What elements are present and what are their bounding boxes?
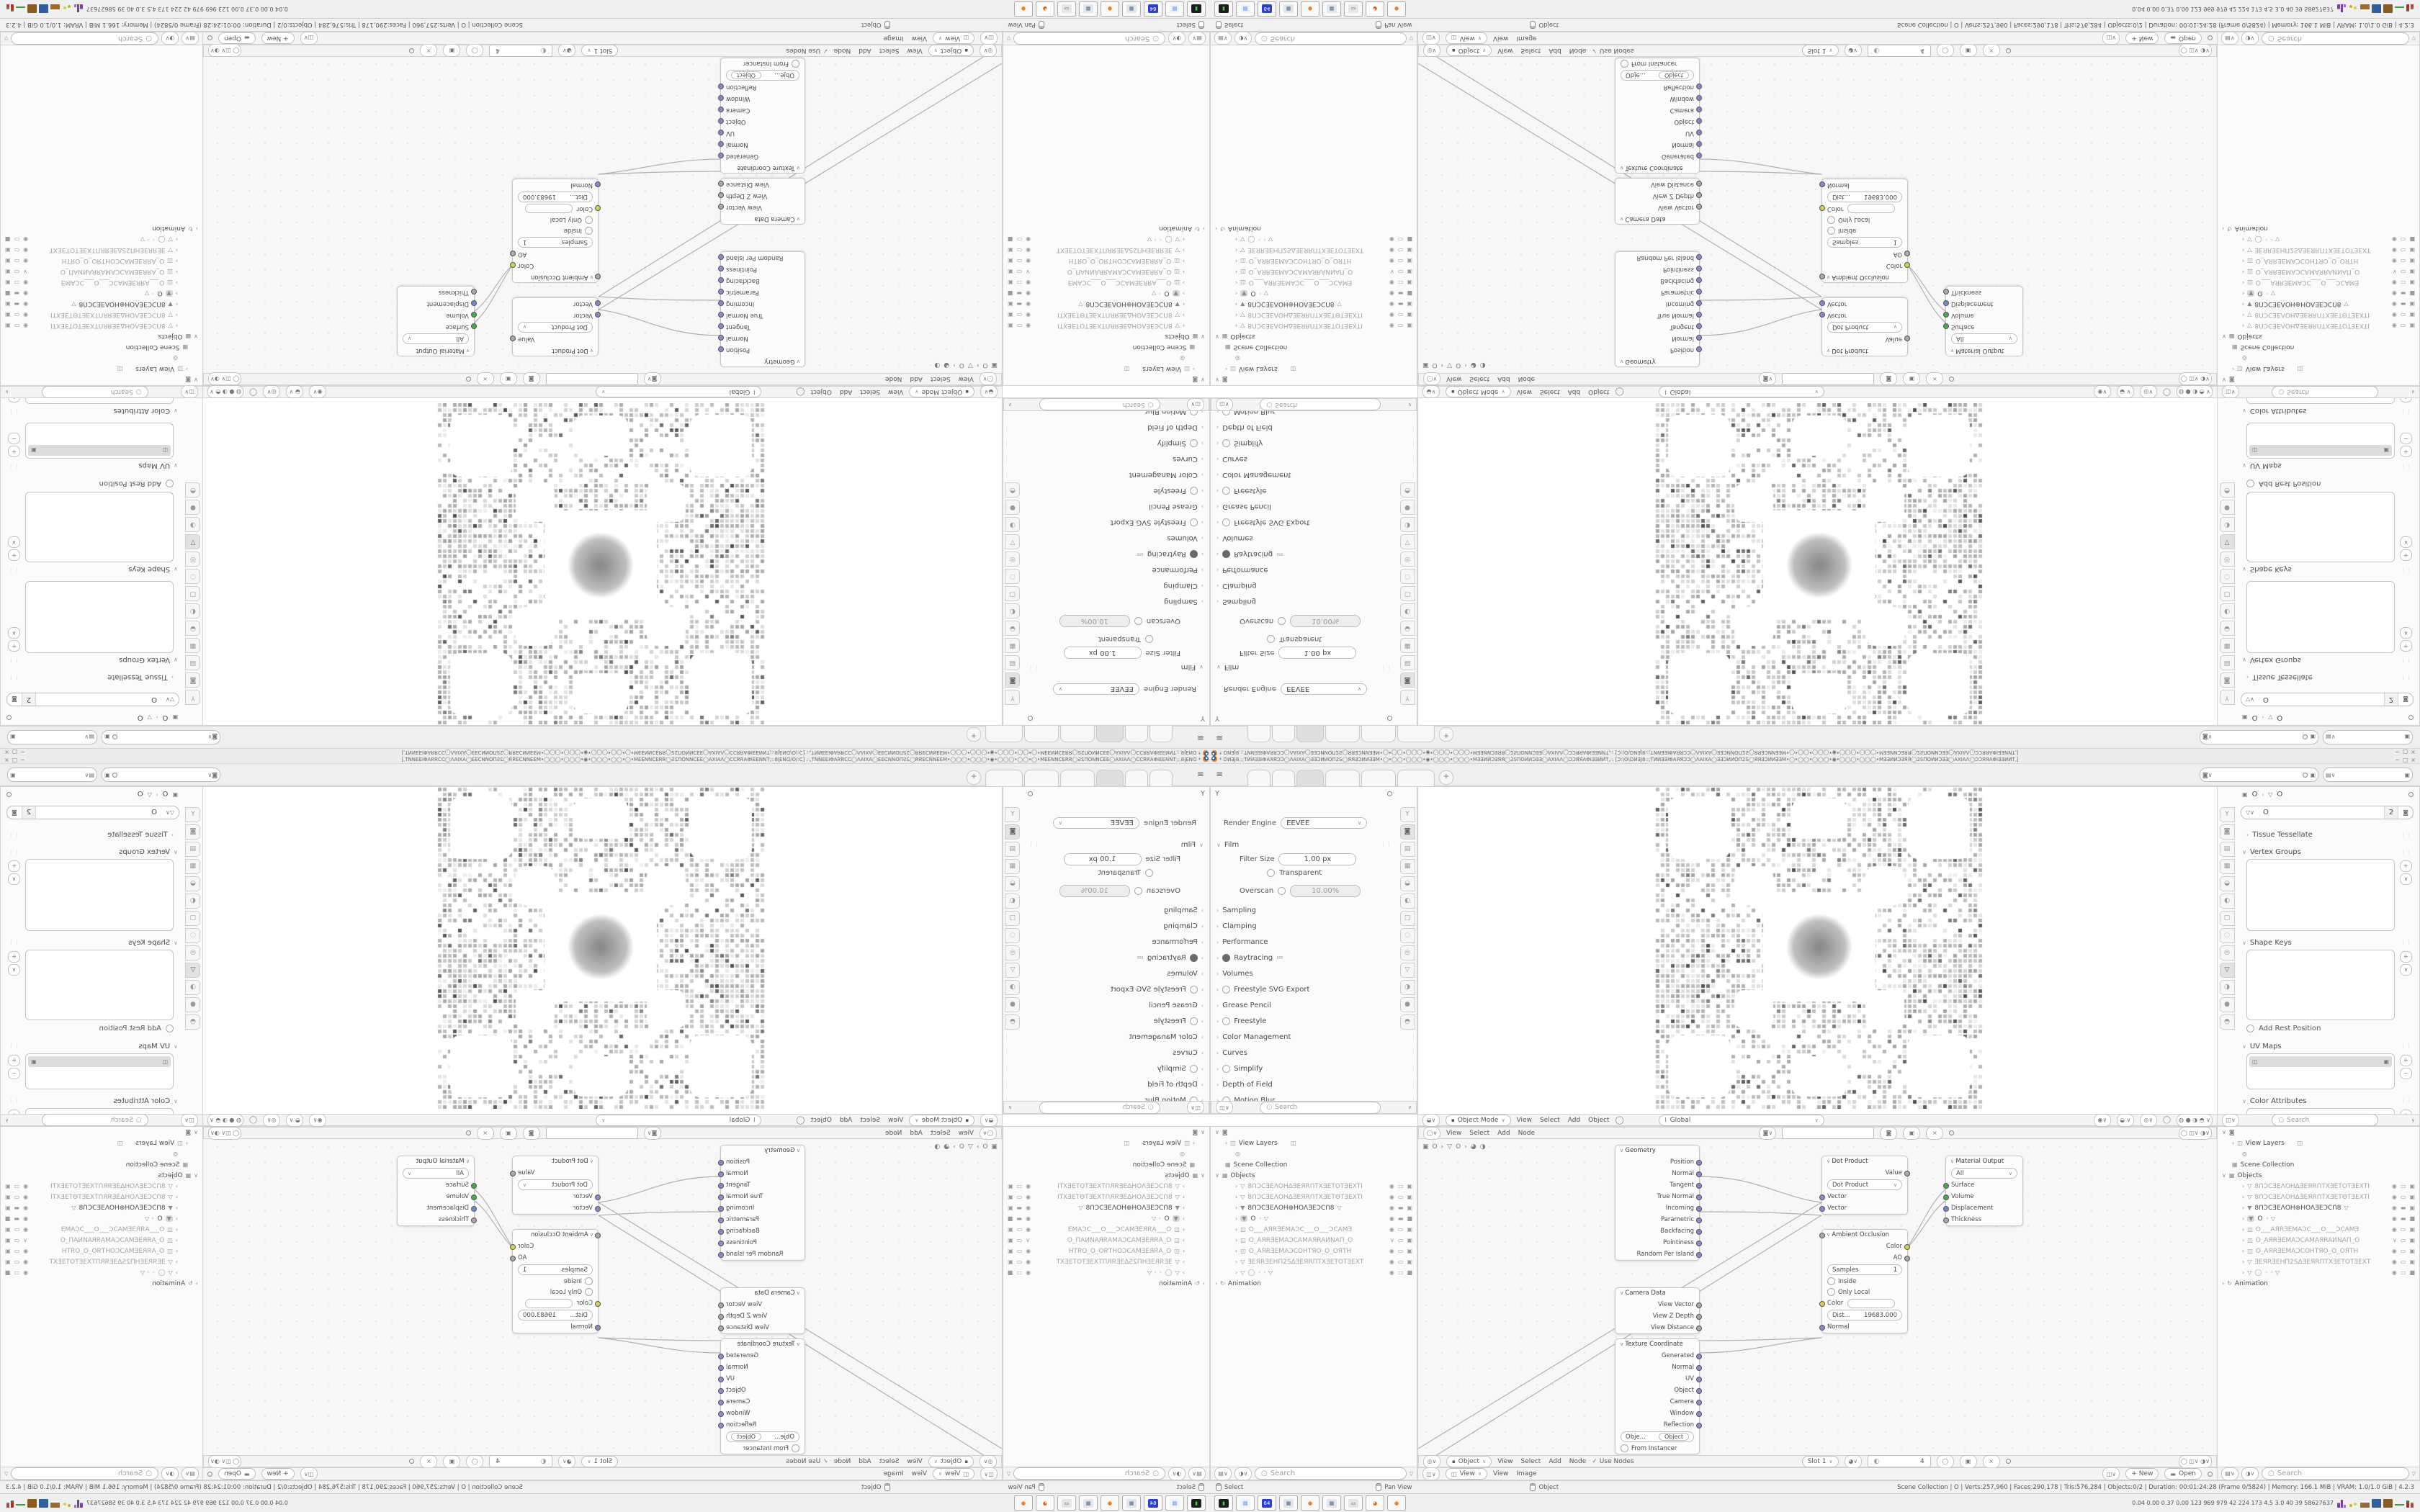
shield-icon[interactable]: ◙ bbox=[7, 693, 22, 706]
mesh-datablock-field[interactable]: ▽∨ O 2 ◙ bbox=[2241, 693, 2414, 706]
copy-icon[interactable]: ▣ bbox=[1903, 1127, 1920, 1140]
render-disable-icon[interactable]: ■ bbox=[1008, 1215, 1013, 1222]
properties-tab[interactable]: ▦ bbox=[186, 859, 201, 874]
viewport-disable-icon[interactable]: ▭ bbox=[14, 1269, 20, 1276]
displacement-input[interactable]: Displacement bbox=[1946, 298, 2022, 310]
viewport-disable-icon[interactable]: ▬ bbox=[1398, 1215, 1404, 1222]
snap-icon[interactable]: ◉∨ bbox=[309, 386, 326, 399]
render-engine-dropdown[interactable]: EEVEE∨ bbox=[1281, 817, 1367, 829]
panel-header[interactable]: ›Clamping⋮⋮ bbox=[1003, 918, 1204, 934]
hide-icon[interactable]: ◉ bbox=[2392, 279, 2397, 286]
taskbar-app-button[interactable]: ● bbox=[1387, 1, 1406, 17]
render-disable-icon[interactable]: ▣ bbox=[5, 258, 11, 264]
panel-checkbox[interactable] bbox=[1190, 440, 1198, 448]
from-instancer-checkbox[interactable]: From Instancer bbox=[1615, 1443, 1699, 1454]
color-input[interactable]: Color bbox=[513, 203, 598, 215]
node-output-socket-row[interactable]: True Normal bbox=[1615, 1191, 1699, 1202]
outliner-root[interactable]: ∨◙ bbox=[1, 374, 202, 385]
specials-button[interactable]: ∨ bbox=[8, 627, 20, 639]
properties-tab[interactable]: ◐ bbox=[186, 894, 201, 909]
image-browse-icon[interactable]: ◫∨ bbox=[2102, 1467, 2120, 1480]
panel-header[interactable]: ›Freestyle⋮⋮ bbox=[1003, 483, 1204, 499]
operation-dropdown[interactable]: Dot Product∨ bbox=[1827, 1179, 1902, 1190]
view-layers-row[interactable]: ›◫View Layers◫ bbox=[1, 364, 202, 374]
outliner-object-row[interactable]: ›▽ƎEЯRƎEHΠ2SΔƎEЯRΠTXƎETOTƎEXT ◉▭▣ bbox=[2218, 245, 2419, 256]
operation-dropdown[interactable]: Dot Product∨ bbox=[518, 1179, 593, 1190]
fake-user-icon[interactable]: ◯ bbox=[1937, 1455, 1954, 1468]
tool-circle-icon[interactable]: ◯ bbox=[796, 387, 805, 397]
search-input[interactable]: ○Search bbox=[42, 386, 148, 398]
new-scene-icon[interactable]: ▣ bbox=[104, 772, 110, 778]
node-output-socket-row[interactable]: View Z Depth bbox=[721, 190, 805, 202]
hide-icon[interactable]: ◉ bbox=[2392, 323, 2397, 329]
render-engine-dropdown[interactable]: EEVEE∨ bbox=[1053, 683, 1139, 695]
panel-header[interactable]: ›Freestyle SVG Export⋮⋮ bbox=[1216, 515, 1417, 531]
taskbar-app-button[interactable]: ▦ bbox=[1322, 1495, 1341, 1511]
render-disable-icon[interactable]: ▣ bbox=[5, 301, 11, 307]
object-field[interactable]: Obje...Object bbox=[1621, 1431, 1694, 1442]
properties-tab[interactable]: ● bbox=[186, 500, 201, 515]
render-disable-icon[interactable]: ▣ bbox=[1407, 1259, 1412, 1265]
outliner-object-row[interactable]: ›◫O_AЯRƎEMAƆCOHTЯO_O_OЯTH ◉▭▣ bbox=[1, 256, 202, 266]
overscan-field[interactable]: 10.00% bbox=[1290, 885, 1361, 897]
view-layers-row[interactable]: ›◫View Layers◫ bbox=[1003, 1138, 1209, 1148]
taskbar-app-button[interactable]: ● bbox=[1301, 1, 1319, 17]
render-disable-icon[interactable]: ■ bbox=[5, 1269, 11, 1276]
panel-header[interactable]: ›Simplify⋮⋮ bbox=[1216, 1061, 1417, 1076]
panel-header[interactable]: ›Curves⋮⋮ bbox=[1216, 451, 1417, 467]
editor-type-icon[interactable]: ◫∨ bbox=[1216, 1101, 1233, 1114]
shading-modes[interactable]: ◍ ● ◑ ◓ ∨ bbox=[2177, 386, 2213, 399]
texture-coordinate-node[interactable]: ∨ Texture Coordinate GeneratedNormalUVOb… bbox=[1615, 58, 1700, 174]
panel-header[interactable]: ›Color Management⋮⋮ bbox=[1003, 467, 1204, 483]
window-buttons[interactable]: −▢× bbox=[2395, 748, 2419, 756]
view-layer-field[interactable] bbox=[18, 733, 83, 742]
workspace-tab[interactable] bbox=[1361, 770, 1396, 786]
viewport-disable-icon[interactable]: ▭ bbox=[1017, 279, 1023, 286]
overscan-field[interactable]: 10.00% bbox=[1059, 885, 1130, 897]
viewport-disable-icon[interactable]: ▭ bbox=[1398, 258, 1404, 264]
outliner-object-row[interactable]: ›▽ƎEЯRƎEHΠ2SΔƎEЯRΠTXƎETOTƎEXT ◉▭▣ bbox=[1, 1256, 202, 1267]
properties-tab[interactable]: ◒ bbox=[1005, 876, 1021, 891]
panel-header[interactable]: ›Performance⋮⋮ bbox=[1216, 562, 1417, 578]
new-scene-icon[interactable]: ▣ bbox=[2310, 772, 2316, 778]
node-output-socket-row[interactable]: View Distance bbox=[1615, 179, 1699, 190]
material-output-node[interactable]: ∨ Material Output All∨ Surface Volume Di… bbox=[397, 1156, 475, 1226]
view-layers-row[interactable]: ›◫View Layers◫ bbox=[2218, 364, 2419, 374]
render-disable-icon[interactable]: ▣ bbox=[1008, 1183, 1013, 1189]
node-output-socket-row[interactable]: Normal bbox=[721, 139, 805, 150]
node-output-socket-row[interactable]: Position bbox=[721, 344, 805, 356]
material-output-node[interactable]: ∨ Material Output All∨ Surface Volume Di… bbox=[1945, 286, 2023, 356]
material-output-node[interactable]: ∨ Material Output All∨ Surface Volume Di… bbox=[397, 286, 475, 356]
view-layer-field[interactable] bbox=[2337, 733, 2402, 742]
render-disable-icon[interactable]: ▣ bbox=[2409, 1205, 2415, 1211]
panel-header[interactable]: ›Simplify⋮⋮ bbox=[1003, 436, 1204, 451]
outliner-object-row[interactable]: ›▽ƎEЯRƎEHΠ2SΔƎEЯRΠTXƎETOTƎEXT ◉▭▣ bbox=[2218, 1256, 2419, 1267]
menu-node[interactable]: Node bbox=[885, 376, 902, 383]
menu-view[interactable]: View bbox=[888, 1117, 903, 1124]
node-output-socket-row[interactable]: Incoming bbox=[721, 1202, 805, 1214]
specials-button[interactable]: ∨ bbox=[8, 873, 20, 885]
hide-icon[interactable]: ∨ bbox=[2393, 269, 2397, 275]
outliner-object-row[interactable]: ›◫O___AЯRƎEMAƆC___O___ƆCAMƎ ◉▭▣ bbox=[1211, 277, 1417, 288]
viewport-disable-icon[interactable]: ▭ bbox=[1398, 269, 1404, 275]
hide-icon[interactable]: ◉ bbox=[23, 1259, 28, 1265]
node-output-socket-row[interactable]: Object bbox=[721, 116, 805, 127]
unlink-icon[interactable]: × bbox=[420, 1455, 437, 1468]
panel-header[interactable]: ›Sampling⋮⋮ bbox=[1216, 594, 1417, 610]
close-button[interactable]: × bbox=[2411, 757, 2419, 763]
panel-header[interactable]: ›Sampling⋮⋮ bbox=[1216, 902, 1417, 918]
hide-icon[interactable]: ◉ bbox=[1389, 1183, 1394, 1189]
tool-circle-icon[interactable]: ◯ bbox=[1615, 387, 1623, 397]
chevron-down-icon[interactable]: ∨ bbox=[1408, 402, 1412, 408]
new-image-button[interactable]: + New bbox=[261, 32, 295, 44]
outliner-root[interactable]: ∨◙ bbox=[1, 1127, 202, 1138]
use-nodes-checkbox[interactable]: ✓Use Nodes bbox=[786, 1458, 828, 1465]
properties-tab[interactable]: ◌ bbox=[2220, 569, 2235, 584]
node-output-socket-row[interactable]: View Vector bbox=[1615, 202, 1699, 213]
taskbar-app-button[interactable]: ▮ bbox=[1187, 1495, 1206, 1511]
target-dropdown[interactable]: All∨ bbox=[403, 333, 469, 344]
render-disable-icon[interactable]: ▣ bbox=[1407, 301, 1412, 307]
viewport-disable-icon[interactable]: ▭ bbox=[1398, 1237, 1404, 1243]
vector-input[interactable]: Vector bbox=[513, 1202, 598, 1214]
color-output[interactable]: Color bbox=[513, 260, 598, 271]
inside-checkbox[interactable]: Inside bbox=[513, 1276, 598, 1287]
menu-hamburger-icon[interactable]: ≡ bbox=[1197, 733, 1204, 743]
objects-row[interactable]: ∨▦Objects bbox=[1003, 331, 1209, 342]
viewport-disable-icon[interactable]: ▬ bbox=[2401, 1205, 2406, 1211]
node-output-socket-row[interactable]: Camera bbox=[721, 1396, 805, 1408]
thickness-input[interactable]: Thickness bbox=[398, 1214, 474, 1225]
view-layers-row[interactable]: ›◫View Layers◫ bbox=[1, 1138, 202, 1148]
viewport-disable-icon[interactable]: ▬ bbox=[1017, 1205, 1023, 1211]
shader-type-dropdown[interactable]: ▪Object∨ bbox=[928, 1456, 974, 1467]
chevron-down-icon[interactable]: ∨ bbox=[2411, 1117, 2415, 1123]
node-output-socket-row[interactable]: Backfacing bbox=[1615, 1225, 1699, 1237]
properties-tab[interactable]: ▤ bbox=[186, 842, 201, 857]
add-button[interactable]: + bbox=[8, 951, 20, 963]
material-browse-icon[interactable]: ◕∨ bbox=[1845, 1455, 1862, 1468]
menu-view[interactable]: View bbox=[888, 389, 903, 396]
viewport-disable-icon[interactable]: ▭ bbox=[1017, 269, 1023, 275]
funnel-icon[interactable]: ▽ bbox=[2412, 1471, 2416, 1477]
hide-icon[interactable]: ∨ bbox=[23, 1237, 27, 1243]
render-disable-icon[interactable]: ■ bbox=[5, 1215, 11, 1222]
viewport-disable-icon[interactable]: ▭ bbox=[1017, 323, 1023, 329]
3d-viewport[interactable] bbox=[202, 397, 1003, 726]
node-output-socket-row[interactable]: UV bbox=[1615, 127, 1699, 139]
node-output-socket-row[interactable]: Parametric bbox=[1615, 287, 1699, 298]
outliner-object-row[interactable]: ›▽ƎEЯRƎEHΠ2SΔƎEЯRΠTXƎETOTƎEXT ◉▭▣ bbox=[1, 245, 202, 256]
panel-checkbox[interactable] bbox=[1190, 986, 1198, 994]
use-nodes-checkbox[interactable]: ✓Use Nodes bbox=[786, 48, 828, 55]
properties-tab[interactable]: ▤ bbox=[1400, 655, 1415, 670]
panel-checkbox[interactable] bbox=[1190, 519, 1198, 527]
properties-tab[interactable]: ▦ bbox=[186, 638, 201, 653]
material-name-field[interactable] bbox=[1782, 1127, 1874, 1139]
overscan-checkbox[interactable] bbox=[1134, 617, 1142, 625]
minimize-button[interactable]: − bbox=[2395, 749, 2403, 755]
panel-header[interactable]: ›Curves⋮⋮ bbox=[1003, 451, 1204, 467]
window-buttons[interactable]: −▢× bbox=[1, 748, 25, 756]
filter-icon[interactable]: ◑∨ bbox=[161, 32, 179, 45]
node-output-socket-row[interactable]: True Normal bbox=[721, 310, 805, 321]
scene-name-field[interactable] bbox=[120, 770, 206, 779]
add-button[interactable]: + bbox=[2400, 549, 2412, 561]
shield-icon[interactable]: ◙ bbox=[2398, 806, 2413, 819]
menu-hamburger-icon[interactable]: ≡ bbox=[1216, 769, 1223, 779]
menu-hamburger-icon[interactable]: ≡ bbox=[1216, 733, 1223, 743]
viewport-disable-icon[interactable]: ▭ bbox=[14, 258, 20, 264]
menu-view[interactable]: View bbox=[1446, 376, 1461, 383]
properties-tab[interactable]: ▽ bbox=[186, 534, 201, 549]
panel-header[interactable]: ›Clamping⋮⋮ bbox=[1003, 578, 1204, 594]
overlay-icons[interactable]: ◯ ◫∨ ◑∨ bbox=[2179, 1455, 2212, 1468]
from-instancer-checkbox[interactable]: From Instancer bbox=[721, 58, 805, 69]
users-count-badge[interactable]: 2 bbox=[2384, 693, 2398, 706]
pin-icon[interactable] bbox=[2303, 773, 2308, 778]
add-button[interactable]: + bbox=[2400, 446, 2412, 457]
panel-header[interactable]: ›Simplify⋮⋮ bbox=[1216, 436, 1417, 451]
close-button[interactable]: × bbox=[1, 749, 9, 755]
transform-orientation-dropdown[interactable]: ⌇Global∨ bbox=[596, 387, 761, 398]
properties-tab[interactable]: ◙ bbox=[2220, 824, 2235, 840]
taskbar-app-button[interactable]: 64 bbox=[1258, 1, 1276, 17]
view-layer-selector[interactable]: ▤∨▣ bbox=[7, 730, 97, 744]
outliner-object-row[interactable]: ›◫O_AЯRƎEMAƆCAMAЯRAИNAΠ_O ∨▭▣ bbox=[1003, 1235, 1209, 1246]
chevron-down-icon[interactable]: ∨ bbox=[2411, 390, 2415, 395]
outliner-object-row[interactable]: ›◫O___AЯRƎEMAƆC___O___ƆCAMƎ ◉▭▣ bbox=[2218, 277, 2419, 288]
image-view-dropdown[interactable]: ◫View∨ bbox=[933, 32, 974, 44]
hide-icon[interactable]: ◉ bbox=[1026, 301, 1031, 307]
add-button[interactable]: + bbox=[2400, 397, 2412, 402]
menu-add[interactable]: Add bbox=[910, 376, 922, 383]
snap-icon[interactable]: ◉∨ bbox=[309, 1114, 326, 1127]
vertex-groups-list[interactable] bbox=[25, 859, 174, 931]
viewport-disable-icon[interactable]: ▭ bbox=[2401, 1269, 2406, 1276]
inside-checkbox[interactable]: Inside bbox=[1822, 225, 1907, 236]
pin-icon[interactable] bbox=[2208, 36, 2213, 41]
object-field[interactable]: Obje...Object bbox=[1621, 70, 1694, 81]
editor-type-icon[interactable]: ◯∨ bbox=[1423, 1127, 1440, 1140]
search-input[interactable]: ○Search bbox=[1039, 1102, 1160, 1114]
target-dropdown[interactable]: All∨ bbox=[403, 1168, 469, 1179]
outliner-object-row[interactable]: ›▽ƎEЯRƎEHΠ2SΔƎEЯRΠTXƎETOTƎEXT ◉▭▣ bbox=[1003, 245, 1209, 256]
node-output-socket-row[interactable]: Camera bbox=[1615, 1396, 1699, 1408]
restore-button[interactable]: ▢ bbox=[2403, 749, 2411, 755]
taskbar-app-button[interactable]: ● bbox=[1014, 1495, 1033, 1511]
scene-selector[interactable]: ◙∨▣ bbox=[102, 768, 220, 782]
node-output-socket-row[interactable]: View Distance bbox=[721, 1322, 805, 1333]
taskbar-app-button[interactable]: 64 bbox=[1258, 1495, 1276, 1511]
outliner-object-row[interactable]: ›▼O◦ ▽ ◉▬■ bbox=[1, 1213, 202, 1224]
operation-dropdown[interactable]: Dot Product∨ bbox=[1827, 322, 1902, 333]
add-button[interactable]: + bbox=[8, 640, 20, 652]
properties-tab[interactable]: ◙ bbox=[186, 824, 201, 840]
properties-tab[interactable]: ▤ bbox=[186, 655, 201, 670]
properties-tab[interactable]: ▦ bbox=[2220, 859, 2235, 874]
hide-icon[interactable]: ◉ bbox=[1026, 1183, 1031, 1189]
material-name-field[interactable] bbox=[1782, 373, 1874, 385]
node-menus[interactable]: View Select Add Node bbox=[1446, 1130, 1535, 1137]
hide-icon[interactable]: ◉ bbox=[2392, 290, 2397, 297]
properties-tab[interactable]: ◙ bbox=[2220, 672, 2235, 688]
scene-selector[interactable]: ◙∨▣ bbox=[102, 730, 220, 744]
funnel-icon[interactable]: ▽ bbox=[4, 1471, 8, 1477]
properties-tab[interactable]: ▽ bbox=[2220, 963, 2235, 978]
node-output-socket-row[interactable]: UV bbox=[721, 1373, 805, 1385]
viewport-disable-icon[interactable]: ▭ bbox=[14, 1259, 20, 1265]
image-menus[interactable]: View Image bbox=[883, 35, 927, 42]
hide-icon[interactable]: ◉ bbox=[2392, 1194, 2397, 1200]
animation-row[interactable]: ›↻Animation bbox=[1003, 1278, 1209, 1289]
panel-header[interactable]: ›Depth of Field⋮⋮ bbox=[1003, 1076, 1204, 1092]
workspace-tab[interactable] bbox=[1272, 770, 1295, 786]
render-disable-icon[interactable]: ▣ bbox=[1008, 279, 1013, 286]
dot-product-node[interactable]: ∨ Dot Product Value Dot Product∨ Vector … bbox=[1821, 297, 1908, 356]
hide-icon[interactable]: ◉ bbox=[1389, 1269, 1394, 1276]
outliner-root[interactable]: ∨◙ bbox=[1211, 374, 1417, 385]
add-workspace-button[interactable]: + bbox=[967, 727, 981, 742]
render-disable-icon[interactable]: ▣ bbox=[2409, 258, 2415, 264]
viewport-disable-icon[interactable]: ▬ bbox=[1398, 290, 1404, 297]
overscan-field[interactable]: 10.00% bbox=[1290, 615, 1361, 627]
filter-icon[interactable]: ◑∨ bbox=[2241, 32, 2259, 45]
vector-input[interactable]: Vector bbox=[1822, 310, 1907, 321]
pin-icon[interactable] bbox=[1028, 716, 1033, 721]
viewport-disable-icon[interactable]: ▭ bbox=[14, 279, 20, 286]
color-attributes-panel[interactable]: ∨Color Attributes⋮⋮ bbox=[8, 405, 178, 417]
outliner-object-row[interactable]: ›◫O_AЯRƎEMAƆCAMAЯRAИNAΠ_O ∨▭▣ bbox=[1, 1235, 202, 1246]
transparent-checkbox[interactable] bbox=[1267, 869, 1275, 877]
pin-icon[interactable] bbox=[112, 773, 117, 778]
hide-icon[interactable]: ◉ bbox=[1026, 258, 1031, 264]
menu-add[interactable]: Add bbox=[910, 1130, 922, 1137]
close-button[interactable]: × bbox=[2411, 749, 2419, 755]
viewport-disable-icon[interactable]: ▭ bbox=[1398, 236, 1404, 243]
funnel-icon[interactable]: ▽ bbox=[4, 36, 8, 42]
hide-icon[interactable]: ∨ bbox=[1390, 1237, 1394, 1243]
render-disable-icon[interactable]: ▣ bbox=[2409, 1194, 2415, 1200]
pin-icon[interactable] bbox=[1387, 716, 1392, 721]
vector-input[interactable]: Vector bbox=[513, 1191, 598, 1202]
value-output[interactable]: Value bbox=[513, 333, 598, 345]
scene-selector[interactable]: ◙∨▣ bbox=[2200, 730, 2318, 744]
outliner-object-row[interactable]: ›▽ƎEЯRƎEHΠ2SΔƎEЯRΠTXƎETOTƎEXT ◉▭▣ bbox=[1211, 1256, 1417, 1267]
add-rest-position-checkbox[interactable] bbox=[166, 480, 174, 487]
animation-row[interactable]: ›↻Animation bbox=[1211, 1278, 1417, 1289]
outliner-object-row[interactable]: ›▽8ՈƆCƎEΛOHΔƎEЯRՈTXƎETΘTƎEXTI ◉▭▣ bbox=[1211, 1192, 1417, 1202]
hide-icon[interactable]: ◉ bbox=[23, 290, 28, 297]
hide-icon[interactable]: ◉ bbox=[2392, 312, 2397, 318]
material-browse-icon[interactable]: ◙∨ bbox=[644, 1127, 661, 1140]
workspace-tab[interactable] bbox=[1325, 726, 1360, 742]
viewport-disable-icon[interactable]: ▭ bbox=[1398, 1194, 1404, 1200]
render-disable-icon[interactable]: ▣ bbox=[2409, 1237, 2415, 1243]
panel-checkbox[interactable] bbox=[1190, 487, 1198, 495]
add-button[interactable]: + bbox=[8, 1055, 20, 1066]
outliner-object-row[interactable]: ›◫O_AЯRƎEMAƆCAMAЯRAИNAΠ_O ∨▭▣ bbox=[2218, 266, 2419, 277]
menu-add[interactable]: Add bbox=[1568, 1117, 1580, 1124]
panel-header[interactable]: ›Freestyle SVG Export⋮⋮ bbox=[1003, 515, 1204, 531]
outliner-root[interactable]: ∨◙ bbox=[2218, 1127, 2419, 1138]
render-disable-icon[interactable]: ▣ bbox=[1407, 1183, 1412, 1189]
workspace-tab-active[interactable] bbox=[1296, 770, 1324, 786]
properties-tab[interactable]: ▤ bbox=[1005, 655, 1021, 670]
taskbar-app-button[interactable]: ▦ bbox=[1279, 1, 1298, 17]
panel-header[interactable]: ›Performance⋮⋮ bbox=[1216, 934, 1417, 950]
render-disable-icon[interactable]: ▣ bbox=[5, 269, 11, 275]
outliner-object-row[interactable]: ›▼8ՈƆCƎEΛOH⊕HOΛƎEƆCՈ8▽ ◉▬▣ bbox=[1211, 299, 1417, 310]
material-name-field[interactable] bbox=[546, 373, 638, 385]
render-disable-icon[interactable]: ▣ bbox=[1407, 1248, 1412, 1254]
outliner-search-input[interactable]: ○Search bbox=[2262, 1467, 2409, 1480]
uv-maps-list[interactable]: ◫▣ bbox=[25, 423, 174, 459]
panel-checkbox[interactable] bbox=[1222, 487, 1230, 495]
panel-header[interactable]: ›Performance⋮⋮ bbox=[1003, 934, 1204, 950]
outliner-root[interactable]: ∨◙ bbox=[1003, 374, 1209, 385]
render-disable-icon[interactable]: ▣ bbox=[2409, 301, 2415, 307]
remove-button[interactable]: − bbox=[2400, 433, 2412, 444]
hide-icon[interactable]: ◉ bbox=[1389, 301, 1394, 307]
view-layer-field[interactable] bbox=[18, 770, 83, 779]
panel-header[interactable]: ›Freestyle SVG Export⋮⋮ bbox=[1003, 981, 1204, 997]
properties-tab[interactable]: ◌ bbox=[186, 928, 201, 943]
material-field[interactable]: ◐4 bbox=[1868, 1455, 1931, 1467]
outliner-object-row[interactable]: ›▽8ՈƆCƎEΛOHΔƎEЯRՈTXƎETΘTƎEXTI ◉▭▣ bbox=[2218, 310, 2419, 320]
view-layers-row[interactable]: ›◫View Layers◫ bbox=[1211, 1138, 1417, 1148]
vertex-groups-panel[interactable]: ∨Vertex Groups⋮⋮ bbox=[8, 846, 178, 858]
node-output-socket-row[interactable]: Object bbox=[1615, 1385, 1699, 1396]
panel-header[interactable]: ›Clamping⋮⋮ bbox=[1216, 918, 1417, 934]
overlay-icons[interactable]: ◯ ◫∨ ◑∨ bbox=[2179, 1127, 2212, 1140]
add-button[interactable]: + bbox=[8, 446, 20, 457]
pin-icon[interactable] bbox=[1028, 791, 1033, 796]
add-rest-position-checkbox[interactable] bbox=[2246, 1025, 2254, 1032]
outliner-search-input[interactable]: ○Search bbox=[11, 1467, 158, 1480]
uv-map-item[interactable]: ◫▣ bbox=[2249, 1056, 2392, 1067]
search-input[interactable]: ○Search bbox=[42, 1114, 148, 1126]
panel-header[interactable]: ›Depth of Field⋮⋮ bbox=[1216, 420, 1417, 436]
viewport-disable-icon[interactable]: ▭ bbox=[1017, 1226, 1023, 1233]
panel-header[interactable]: ›Grease Pencil⋮⋮ bbox=[1216, 499, 1417, 515]
overlay-icons[interactable]: ◯ ◫∨ ◑∨ bbox=[208, 1455, 241, 1468]
remove-button[interactable]: − bbox=[8, 1068, 20, 1079]
menu-add[interactable]: Add bbox=[1568, 389, 1580, 396]
overlays-icon[interactable]: ◎∨ bbox=[2140, 386, 2157, 399]
node-output-socket-row[interactable]: View Distance bbox=[721, 179, 805, 190]
outliner-object-row[interactable]: ›◫O_AЯRƎEMAƆCAMAЯRAИNAΠ_O ∨▭▣ bbox=[1003, 266, 1209, 277]
viewport-disable-icon[interactable]: ▭ bbox=[1017, 247, 1023, 253]
hide-icon[interactable]: ◉ bbox=[23, 312, 28, 318]
properties-tab[interactable]: ▤ bbox=[2220, 655, 2235, 670]
node-output-socket-row[interactable]: Object bbox=[721, 1385, 805, 1396]
animation-row[interactable]: ›↻Animation bbox=[1003, 223, 1209, 234]
menu-select[interactable]: Select bbox=[860, 389, 880, 396]
workspace-tab[interactable] bbox=[1149, 726, 1173, 742]
hide-icon[interactable]: ◉ bbox=[1026, 1259, 1031, 1265]
copy-icon[interactable]: ▣ bbox=[500, 1127, 517, 1140]
pin-icon[interactable] bbox=[2408, 792, 2414, 797]
slot-dropdown[interactable]: Slot 1∨ bbox=[1802, 1456, 1839, 1467]
properties-tab[interactable]: ◙ bbox=[186, 672, 201, 688]
pin-icon[interactable] bbox=[1949, 1130, 1954, 1135]
node-output-socket-row[interactable]: Backfacing bbox=[1615, 275, 1699, 287]
image-browse-icon[interactable]: ◫∨ bbox=[300, 32, 318, 45]
